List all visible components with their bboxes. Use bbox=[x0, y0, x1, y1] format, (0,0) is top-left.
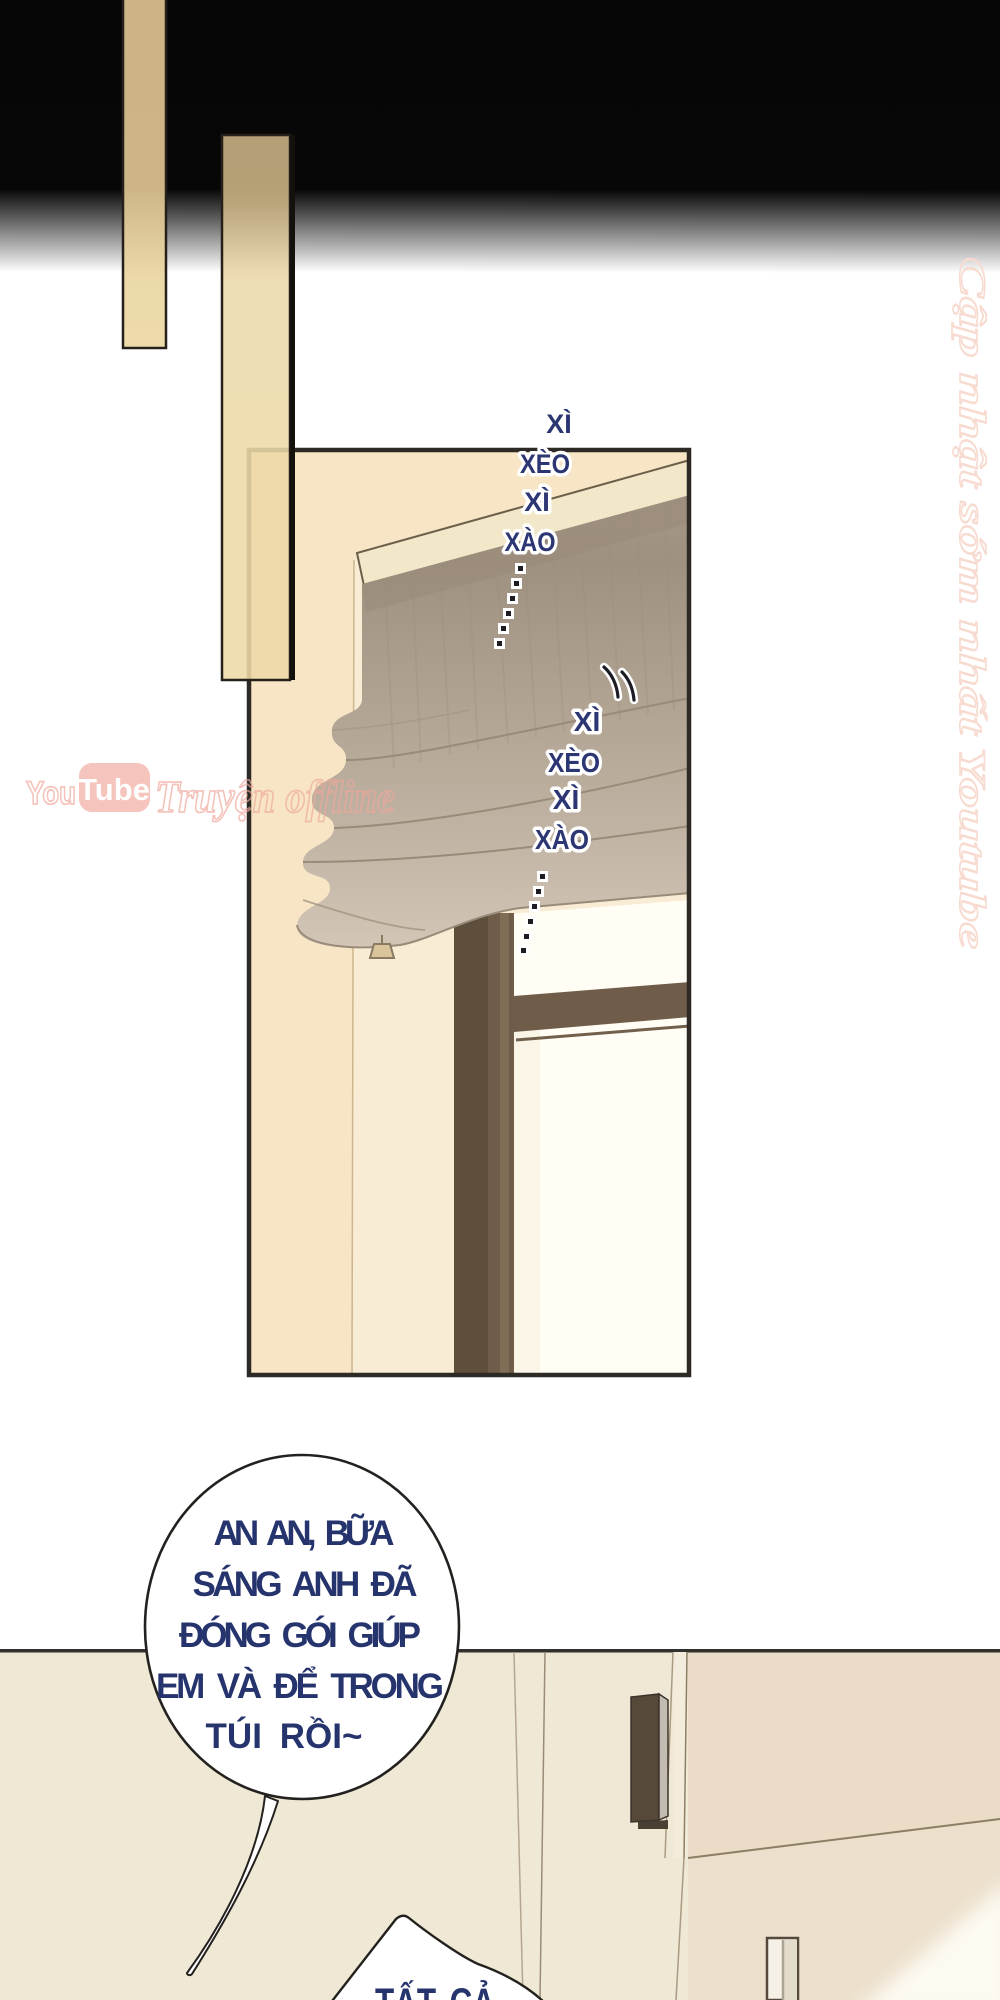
svg-text:EM VÀ ĐỂ TRONG: EM VÀ ĐỂ TRONG bbox=[156, 1666, 444, 1706]
svg-text:Truyện offline: Truyện offline bbox=[155, 771, 395, 822]
svg-text:XÈO: XÈO bbox=[548, 747, 600, 778]
svg-text:XÀO: XÀO bbox=[535, 824, 589, 855]
svg-text:XÈO: XÈO bbox=[520, 448, 570, 479]
svg-text:You: You bbox=[26, 775, 76, 811]
svg-text:TÚI RỒI~: TÚI RỒI~ bbox=[206, 1716, 363, 1756]
svg-text:Tube: Tube bbox=[78, 772, 150, 807]
svg-text:XÌ: XÌ bbox=[553, 784, 579, 815]
svg-text:XÌ: XÌ bbox=[524, 486, 550, 517]
svg-text:XÌ: XÌ bbox=[574, 706, 600, 737]
svg-text:SÁNG ANH ĐÃ: SÁNG ANH ĐÃ bbox=[193, 1564, 418, 1604]
svg-text:XÀO: XÀO bbox=[505, 526, 556, 557]
svg-text:Cập nhật sớm nhất Youtube: Cập nhật sớm nhất Youtube bbox=[951, 257, 992, 949]
svg-text:TẤT CẢ: TẤT CẢ bbox=[375, 1979, 495, 2000]
svg-text:ĐÓNG GÓI GIÚP: ĐÓNG GÓI GIÚP bbox=[179, 1615, 421, 1655]
svg-text:XÌ: XÌ bbox=[546, 408, 572, 439]
svg-text:AN AN, BỮA: AN AN, BỮA bbox=[214, 1513, 395, 1553]
